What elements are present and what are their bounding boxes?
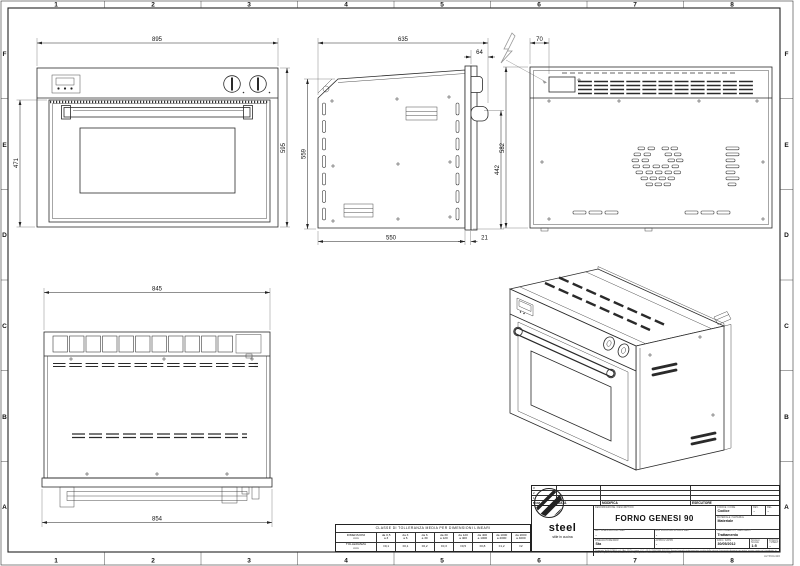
svg-text:6: 6 xyxy=(537,2,541,9)
svg-text:B: B xyxy=(784,414,789,421)
field-materiale: MATERIALE / MATERIAL Materiale xyxy=(716,516,779,530)
svg-text:4: 4 xyxy=(344,2,348,9)
steel-logo: steel stile in cucina xyxy=(532,506,594,556)
brand-name: steel xyxy=(549,523,577,534)
svg-text:C: C xyxy=(784,323,789,330)
steel-logo-mark xyxy=(532,486,566,520)
side-vent-slots-left xyxy=(323,103,326,220)
brand-tagline: stile in cucina xyxy=(552,535,572,539)
svg-text:7: 7 xyxy=(633,558,637,565)
dim-rear-width: 845 xyxy=(152,287,163,293)
door-window xyxy=(80,128,235,193)
dim-side-height: 559 xyxy=(302,148,308,159)
tolerance-value-row: TOLLERANZA mm ±0,1 ±0,1 ±0,2 ±0,3 ±0,5 ±… xyxy=(336,542,530,552)
field-disegnatore: DISEGNATORE/DRW Sta xyxy=(594,539,655,548)
svg-text:4: 4 xyxy=(344,558,348,565)
tolerance-table-title: CLASSE DI TOLLERANZA MEDIA PER DIMENSION… xyxy=(336,525,530,533)
knob xyxy=(250,76,271,94)
terminal-box xyxy=(549,77,575,92)
field-data: DATA / DATE 30/05/2012 xyxy=(716,539,750,548)
svg-text:F: F xyxy=(3,51,7,58)
tolerance-table: CLASSE DI TOLLERANZA MEDIA PER DIMENSION… xyxy=(335,524,531,552)
dim-side-depth: 635 xyxy=(398,37,409,43)
dim-front-width: 895 xyxy=(152,37,163,43)
field-dis-forn: DIS. FORN./SUPPL.DWG REF. - xyxy=(655,530,716,539)
field-foglio: FOGLIO / SHEET - xyxy=(768,539,779,548)
junction-box xyxy=(236,335,261,354)
svg-text:8: 8 xyxy=(730,558,734,565)
sheet-size-note: A2 594x420 xyxy=(680,554,780,558)
svg-text:1: 1 xyxy=(54,2,58,9)
svg-text:2: 2 xyxy=(151,558,155,565)
oven-door xyxy=(49,100,270,222)
control-display xyxy=(52,75,80,93)
svg-text:C: C xyxy=(2,323,7,330)
iso-side-face xyxy=(636,326,724,470)
drawing-title-cell: DENOMINAZIONE / DESCRIPTION FORNO GENESI… xyxy=(594,506,715,530)
drawing-canvas: 1 2 3 4 5 6 7 8 1 2 3 4 5 6 7 8 F E D C … xyxy=(0,0,800,566)
tolerance-dimension-row: DIMENSIONI mm da 0,5a 3 da 3a 6 da 6a 30… xyxy=(336,533,530,542)
svg-text:E: E xyxy=(2,142,7,149)
handle-profile xyxy=(471,107,488,122)
svg-text:D: D xyxy=(2,232,7,239)
door-handle xyxy=(62,106,253,120)
front-view: 895 471 595 xyxy=(14,37,290,227)
field-codice: CODICE / CODE Codice REV. - REL. - xyxy=(716,506,779,516)
field-trattamento: TRATTAMENTO / TREATMENT Trattamento xyxy=(716,530,779,539)
grid-row-labels-left: F E D C B A xyxy=(2,51,7,511)
dim-back-height: 582 xyxy=(500,142,506,153)
grid-row-labels-right: F E D C B A xyxy=(784,51,789,511)
back-dimensions: 70 582 xyxy=(500,37,549,228)
dim-front-height: 595 xyxy=(281,142,287,153)
svg-text:5: 5 xyxy=(440,2,444,9)
svg-text:5: 5 xyxy=(440,558,444,565)
svg-text:7: 7 xyxy=(633,2,637,9)
svg-text:A: A xyxy=(784,504,789,511)
svg-text:1: 1 xyxy=(54,558,58,565)
svg-text:3: 3 xyxy=(247,2,251,9)
top-vent-grille xyxy=(578,82,755,94)
svg-text:6: 6 xyxy=(537,558,541,565)
knob xyxy=(224,76,245,94)
side-view: 635 64 559 442 550 21 xyxy=(302,37,505,245)
dim-rear-base-width: 854 xyxy=(152,517,163,523)
title-block: 3 2 1 NUM DATA MODIFICA ESECUTORE steel xyxy=(531,485,780,552)
back-view: 70 582 xyxy=(500,37,772,231)
svg-text:F: F xyxy=(785,51,789,58)
svg-text:D: D xyxy=(784,232,789,239)
vent-slots-bottom xyxy=(573,211,730,214)
svg-text:B: B xyxy=(2,414,7,421)
vent-dash-row-top xyxy=(53,364,258,367)
svg-text:2: 2 xyxy=(151,2,155,9)
vent-dash-row-middle xyxy=(72,434,247,438)
vent-slots-u-pattern xyxy=(632,147,683,186)
dim-back-offset: 70 xyxy=(536,37,543,43)
svg-text:8: 8 xyxy=(730,2,734,9)
dim-side-body-depth: 550 xyxy=(386,236,397,242)
field-art-cliente: ART. CLIENTE/COMP.-REF. - xyxy=(594,530,655,539)
dim-side-opening-height: 442 xyxy=(495,164,501,175)
rear-view: 845 854 xyxy=(42,287,272,528)
field-rel: REL. - xyxy=(765,506,779,515)
dim-side-gap: 21 xyxy=(481,236,488,242)
rear-dimensions: 845 854 xyxy=(42,287,272,528)
isometric-view xyxy=(510,267,731,471)
side-vent-slots-right xyxy=(456,103,459,220)
base-assembly xyxy=(42,478,272,507)
dim-side-handle-depth: 64 xyxy=(476,50,483,56)
front-dimensions: 895 471 595 xyxy=(14,37,290,227)
screw-marks xyxy=(69,357,254,476)
knob-profile xyxy=(471,77,483,93)
vent-slots-right-column xyxy=(726,147,739,186)
svg-text:A: A xyxy=(2,504,7,511)
svg-text:E: E xyxy=(784,142,789,149)
field-approvato: APPROV./APPD - xyxy=(655,539,716,548)
field-rev: REV. - xyxy=(751,506,765,515)
technical-drawing-sheet: 1 2 3 4 5 6 7 8 1 2 3 4 5 6 7 8 F E D C … xyxy=(0,0,800,566)
field-scala: SCALA / SCALE 1:5 xyxy=(750,539,768,548)
rear-top-grille xyxy=(53,336,233,352)
drawing-title: FORNO GENESI 90 xyxy=(594,509,715,529)
dim-front-door-height: 471 xyxy=(14,157,20,168)
front-frame-profile xyxy=(465,66,471,230)
svg-text:3: 3 xyxy=(247,558,251,565)
